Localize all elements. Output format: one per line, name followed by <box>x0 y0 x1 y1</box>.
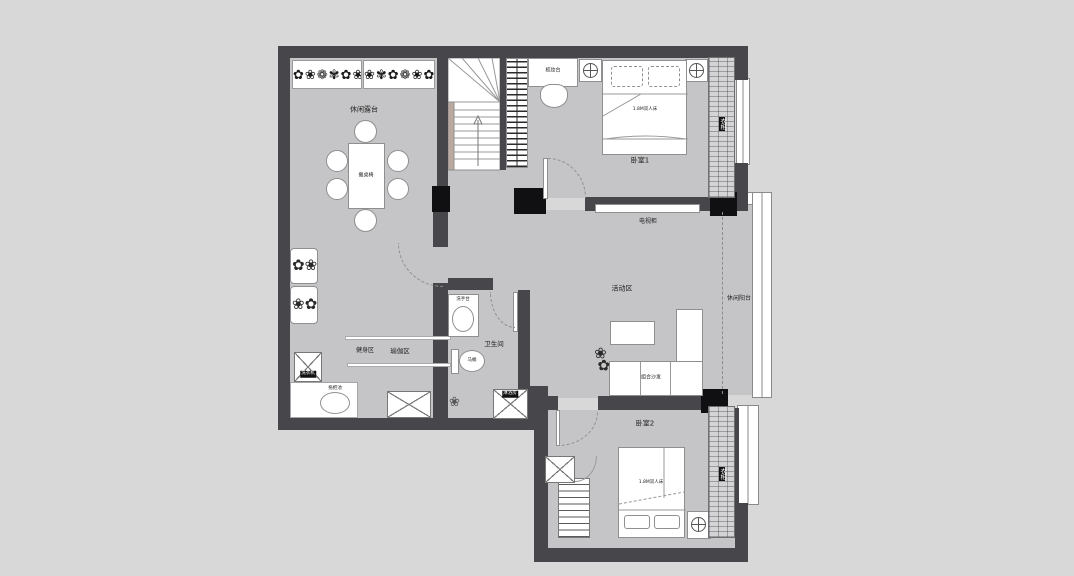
shower-label: 淋浴房 <box>502 391 518 398</box>
sofa-chaise <box>676 309 703 363</box>
washing-machine-label: 洗衣机 <box>300 371 316 378</box>
column-terrace-stair <box>432 186 450 212</box>
coffee-table <box>610 321 655 345</box>
tv-cabinet-label: 电视柜 <box>639 219 657 225</box>
floor-drain-pad <box>387 391 431 418</box>
dressing-desk-label: 梳妆台 <box>545 69 560 74</box>
desk-chair <box>540 84 568 108</box>
floorplan-canvas: ✿❀❁✾✿❀ ❀✾✿❁❀✿ 休闲露台 餐桌椅 ✿❀ <box>0 0 1074 576</box>
lamp-icon <box>691 517 706 532</box>
yoga-mat-line <box>347 363 451 367</box>
lamp-icon <box>689 63 704 78</box>
room-label-terrace: 休闲露台 <box>350 107 378 114</box>
basin-label: 洗手台 <box>456 298 470 303</box>
zone-label-yoga: 瑜伽区 <box>390 348 410 355</box>
flower-bed-right: ❀✾✿❁❀✿ <box>363 60 435 89</box>
storage-rack <box>558 478 590 538</box>
wardrobe2-label: 衣柜 <box>719 467 725 481</box>
mop-pool-label: 拖把池 <box>328 387 342 392</box>
balcony-boundary-dashed <box>722 212 723 394</box>
wall-stair-right <box>500 58 506 170</box>
dining-chair <box>354 120 377 143</box>
window-bedroom1-right <box>736 78 750 165</box>
balcony-parapet-right <box>752 192 772 398</box>
room-label-bedroom2: 卧室2 <box>636 421 654 428</box>
room-label-bathroom: 卫生间 <box>484 341 504 348</box>
bathroom-plant-icon: ❀ <box>449 396 460 409</box>
toilet-tank <box>451 349 459 374</box>
wall-bedroom2-top-right <box>598 396 705 410</box>
wardrobe1-label: 衣柜 <box>719 117 725 131</box>
lamp-icon <box>583 63 598 78</box>
plant-icon: ✿❀ <box>292 258 317 273</box>
room-label-bedroom1: 卧室1 <box>631 158 649 165</box>
wall-stair-left <box>437 58 448 190</box>
bed2-label: 1.8M双人床 <box>639 481 664 486</box>
bed1-label: 1.8M双人床 <box>633 108 658 113</box>
room-label-balcony: 休闲阳台 <box>727 296 751 302</box>
yoga-mat-line <box>345 336 451 340</box>
bed2 <box>618 447 685 538</box>
flower-bed-left: ✿❀❁✾✿❀ <box>292 60 362 89</box>
wall-yoga-hall-upper <box>433 208 448 247</box>
wall-bathroom-top <box>448 278 493 290</box>
room-label-activity: 活动区 <box>612 286 633 293</box>
stair-ladder-rack <box>506 58 528 168</box>
wall-right-top <box>735 46 748 80</box>
dining-chair <box>326 178 348 200</box>
mop-pool <box>320 392 350 414</box>
plant-icon: ❀✿ <box>292 297 317 312</box>
wall-bedroom2-right-low <box>735 503 748 562</box>
dining-table-label: 餐桌椅 <box>358 174 373 179</box>
wall-top <box>278 46 748 58</box>
wall-bottom-left <box>278 418 548 430</box>
dining-chair <box>354 209 377 232</box>
zone-label-fitness: 健身区 <box>356 348 374 354</box>
bedroom2-corner-pad <box>545 456 575 483</box>
wall-left <box>278 46 290 418</box>
wall-bathroom-right <box>518 290 530 392</box>
bathroom-basin <box>452 306 474 332</box>
dining-chair <box>387 150 409 172</box>
dining-chair <box>387 178 409 200</box>
toilet-label: 马桶 <box>468 359 477 364</box>
column-stair-hall <box>514 188 546 214</box>
staircase <box>448 58 500 170</box>
bed2-fold-lines <box>619 448 686 539</box>
wall-yoga-hall-lower <box>433 283 448 420</box>
window-bedroom2-right <box>737 405 759 505</box>
tv-cabinet <box>595 204 700 213</box>
dining-chair <box>326 150 348 172</box>
sofa-label: 组合沙发 <box>641 376 661 381</box>
wall-bedroom2-bottom <box>534 548 748 562</box>
washing-machine <box>294 352 322 382</box>
